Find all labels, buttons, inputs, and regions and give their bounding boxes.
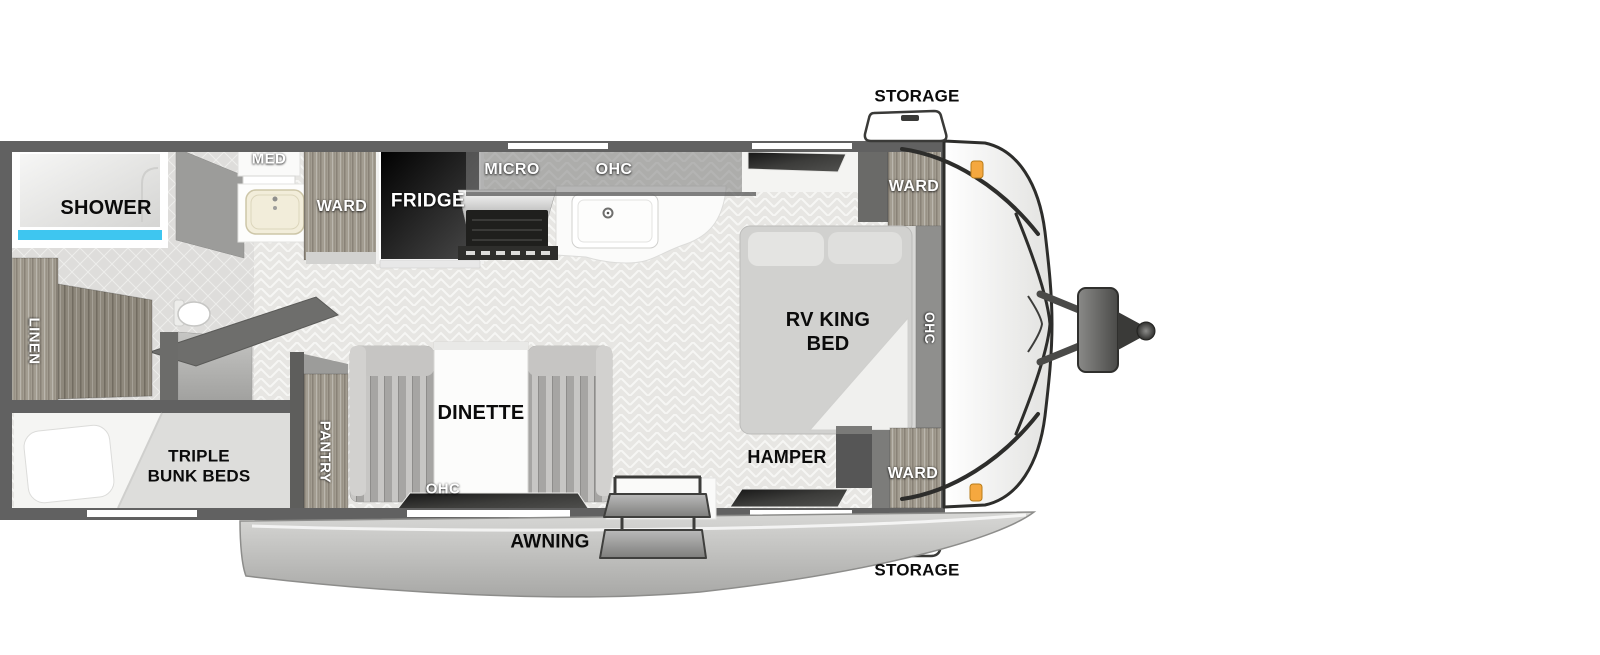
- shower-door-glass: [18, 230, 162, 240]
- hitch: [1040, 288, 1155, 372]
- bedroom-window-pane: [748, 152, 846, 172]
- storage-top-label: STORAGE: [874, 88, 959, 105]
- triple-bunk-beds: [14, 413, 302, 508]
- cap-marker-top-icon: [971, 161, 983, 178]
- med-shelf: [243, 176, 295, 184]
- propane-cover: [1078, 288, 1118, 372]
- cap-marker-bottom-icon: [970, 484, 982, 501]
- front-cap-body: [944, 141, 1052, 507]
- dinette-bench-left-arm: [350, 346, 366, 496]
- bunk-pillow: [22, 424, 115, 505]
- toilet-bowl: [178, 302, 210, 326]
- bath-wardrobe-base: [306, 252, 378, 264]
- top-window-slot-bedroom: [752, 143, 852, 149]
- bottom-window-slot-dinette: [407, 510, 570, 517]
- vanity-faucet-icon: [273, 197, 278, 202]
- bed-pillow-right: [828, 232, 902, 264]
- storage-door-top: [865, 111, 947, 141]
- corner-cabinet: [58, 284, 152, 399]
- dinette-ohc-label: OHC: [426, 482, 461, 497]
- step-tread-2: [600, 530, 706, 558]
- sink-drain-icon: [607, 212, 610, 215]
- bed-label-line1: RV KING: [786, 310, 870, 330]
- storage-door-top-handle-icon: [901, 115, 919, 121]
- kitchen-sink-basin: [578, 200, 652, 242]
- bed-label-line2: BED: [807, 334, 850, 354]
- hamper-box: [836, 426, 872, 488]
- wall-stub: [160, 332, 178, 402]
- hamper-window-pane: [730, 489, 848, 507]
- hamper-box-top: [836, 426, 872, 434]
- bottom-window-slot-bunk: [87, 510, 197, 517]
- storage-bottom-label: STORAGE: [874, 562, 959, 579]
- bedroom-ohc-label: OHC: [923, 312, 937, 344]
- bunkroom-wall: [12, 400, 305, 413]
- kitchen-ohc-label: OHC: [596, 162, 633, 178]
- kitchen-overhead-cabinet-edge: [466, 192, 756, 196]
- shower-door-rail: [18, 227, 162, 230]
- bunk-label-line1: TRIPLE: [168, 448, 230, 465]
- fridge-label: FRIDGE: [391, 192, 465, 211]
- vanity-sink: [238, 184, 312, 242]
- fridge-base: [380, 260, 480, 268]
- linen-label: LINEN: [27, 318, 42, 365]
- vanity-drain-icon: [273, 206, 277, 210]
- micro-label: MICRO: [484, 162, 539, 178]
- dinette-bench-right-arm: [596, 346, 612, 496]
- bed-pillow-left: [748, 232, 824, 266]
- rv-floorplan: SHOWER MED WARD LINEN FRIDGE MICRO OHC P…: [0, 0, 1600, 655]
- ward-bottom-label: WARD: [888, 466, 938, 482]
- ward-top-label: WARD: [889, 179, 939, 195]
- entry-steps: [600, 477, 716, 558]
- awning-label: AWNING: [510, 533, 589, 552]
- wardrobe-top-side: [858, 150, 888, 222]
- stove: [458, 190, 558, 260]
- dinette-table-edge: [434, 342, 528, 350]
- hitch-ball-icon: [1137, 322, 1155, 340]
- top-window-slot-kitchen: [508, 143, 608, 149]
- pantry-label: PANTRY: [318, 421, 333, 483]
- left-wall: [0, 141, 12, 520]
- hamper-label: HAMPER: [747, 448, 826, 466]
- med-label: MED: [252, 152, 287, 167]
- bunk-label-line2: BUNK BEDS: [148, 468, 251, 485]
- shower-label: SHOWER: [60, 198, 151, 218]
- step-tread-1: [604, 494, 710, 517]
- dinette-label: DINETTE: [438, 403, 525, 423]
- bath-ward-label: WARD: [317, 199, 367, 215]
- pantry-wall: [290, 352, 304, 512]
